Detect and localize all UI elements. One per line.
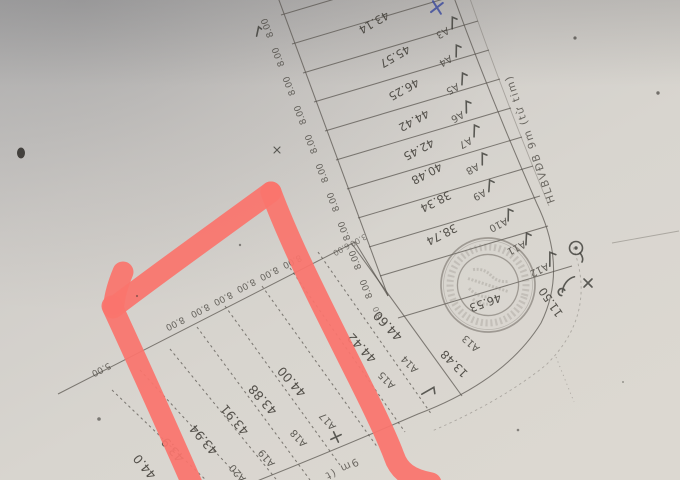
paper-shading-top xyxy=(0,0,680,480)
survey-plan-canvas: 43.14 45.57 46.25 44.42 42.45 40.48 38.3… xyxy=(0,0,680,480)
survey-plan-photo: 43.14 45.57 46.25 44.42 42.45 40.48 38.3… xyxy=(0,0,680,480)
